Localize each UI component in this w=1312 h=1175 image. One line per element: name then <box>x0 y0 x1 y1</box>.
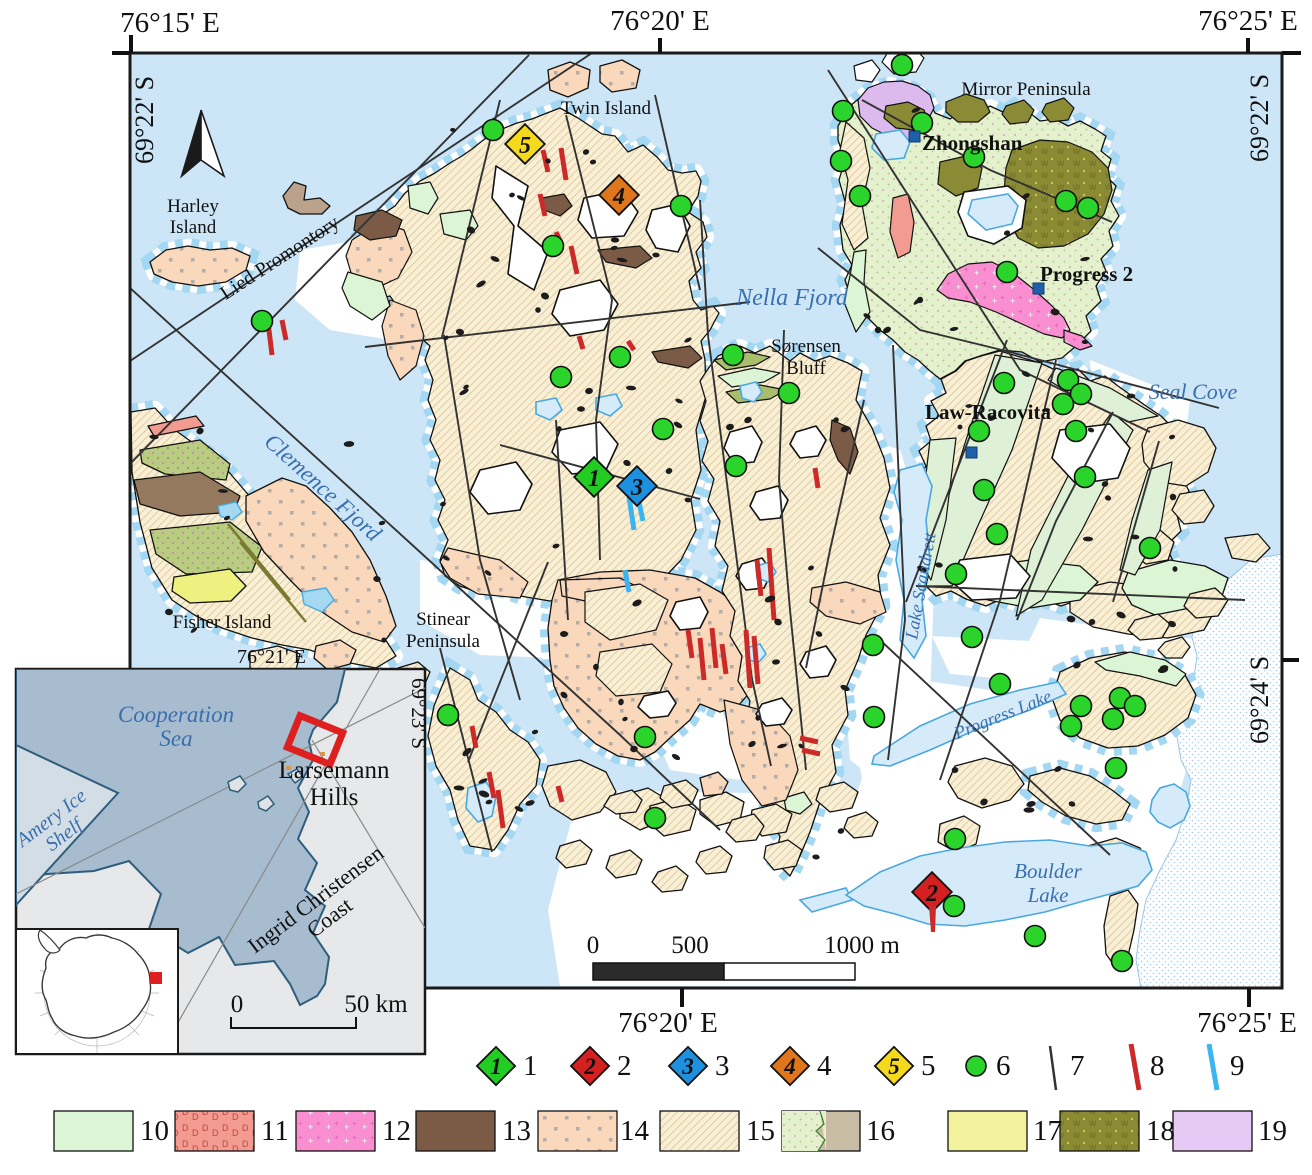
svg-text:500: 500 <box>671 932 709 959</box>
svg-text:69°22' S: 69°22' S <box>1245 74 1274 162</box>
svg-text:Boulder: Boulder <box>1014 859 1082 883</box>
svg-text:Law-Racovita: Law-Racovita <box>925 400 1051 424</box>
svg-text:Seal Cove: Seal Cove <box>1149 379 1238 404</box>
svg-text:12: 12 <box>382 1115 411 1147</box>
svg-text:Lake: Lake <box>1027 883 1069 907</box>
svg-text:5: 5 <box>888 1054 900 1079</box>
svg-text:76°25' E: 76°25' E <box>1198 5 1298 37</box>
svg-text:Hills: Hills <box>310 784 359 811</box>
svg-text:8: 8 <box>1150 1050 1165 1082</box>
svg-text:Larsemann: Larsemann <box>278 757 390 784</box>
svg-text:Mirror Peninsula: Mirror Peninsula <box>961 79 1091 100</box>
svg-text:0: 0 <box>231 991 244 1018</box>
svg-text:Stinear: Stinear <box>416 609 470 630</box>
svg-text:0: 0 <box>587 932 600 959</box>
svg-text:Peninsula: Peninsula <box>406 631 480 652</box>
svg-text:69°23' S: 69°23' S <box>407 678 431 749</box>
svg-text:14: 14 <box>620 1115 650 1147</box>
svg-text:4: 4 <box>612 184 625 210</box>
svg-text:3: 3 <box>630 475 643 501</box>
svg-text:4: 4 <box>783 1054 796 1079</box>
svg-text:76°25' E: 76°25' E <box>1197 1007 1297 1039</box>
svg-text:2: 2 <box>617 1050 632 1082</box>
svg-text:Nella Fjord: Nella Fjord <box>735 285 849 311</box>
svg-text:1: 1 <box>523 1050 538 1082</box>
svg-text:Cooperation: Cooperation <box>118 702 234 727</box>
svg-text:69°24' S: 69°24' S <box>1245 656 1274 744</box>
svg-text:Bluff: Bluff <box>786 358 826 379</box>
svg-text:11: 11 <box>261 1115 289 1147</box>
svg-text:6: 6 <box>996 1050 1011 1082</box>
svg-text:3: 3 <box>681 1054 694 1079</box>
svg-text:5: 5 <box>519 133 531 159</box>
svg-text:18: 18 <box>1146 1115 1175 1147</box>
svg-text:19: 19 <box>1258 1115 1287 1147</box>
svg-text:76°20' E: 76°20' E <box>618 1007 718 1039</box>
svg-text:Fisher Island: Fisher Island <box>173 612 272 633</box>
svg-text:Twin Island: Twin Island <box>561 98 651 119</box>
svg-text:76°20' E: 76°20' E <box>610 5 710 37</box>
svg-text:5: 5 <box>921 1050 936 1082</box>
svg-text:3: 3 <box>715 1050 730 1082</box>
svg-text:4: 4 <box>817 1050 832 1082</box>
svg-text:10: 10 <box>140 1115 169 1147</box>
svg-text:7: 7 <box>1070 1050 1085 1082</box>
svg-text:17: 17 <box>1033 1115 1062 1147</box>
svg-text:Sea: Sea <box>159 726 192 751</box>
svg-text:16: 16 <box>866 1115 895 1147</box>
svg-text:13: 13 <box>502 1115 531 1147</box>
svg-text:Zhongshan: Zhongshan <box>922 131 1023 155</box>
svg-text:Island: Island <box>170 217 217 238</box>
svg-text:9: 9 <box>1230 1050 1245 1082</box>
svg-text:Harley: Harley <box>167 196 219 217</box>
svg-text:2: 2 <box>583 1054 596 1079</box>
svg-text:50 km: 50 km <box>344 991 408 1018</box>
svg-text:1000 m: 1000 m <box>824 932 900 959</box>
svg-text:Sørensen: Sørensen <box>771 336 841 357</box>
svg-text:15: 15 <box>746 1115 775 1147</box>
svg-text:69°22' S: 69°22' S <box>130 76 159 164</box>
svg-text:Progress 2: Progress 2 <box>1040 262 1133 286</box>
svg-text:1: 1 <box>490 1054 502 1079</box>
svg-text:76°21' E: 76°21' E <box>237 646 306 668</box>
svg-text:76°15' E: 76°15' E <box>120 7 220 39</box>
svg-text:1: 1 <box>588 466 600 492</box>
svg-text:2: 2 <box>925 881 938 907</box>
